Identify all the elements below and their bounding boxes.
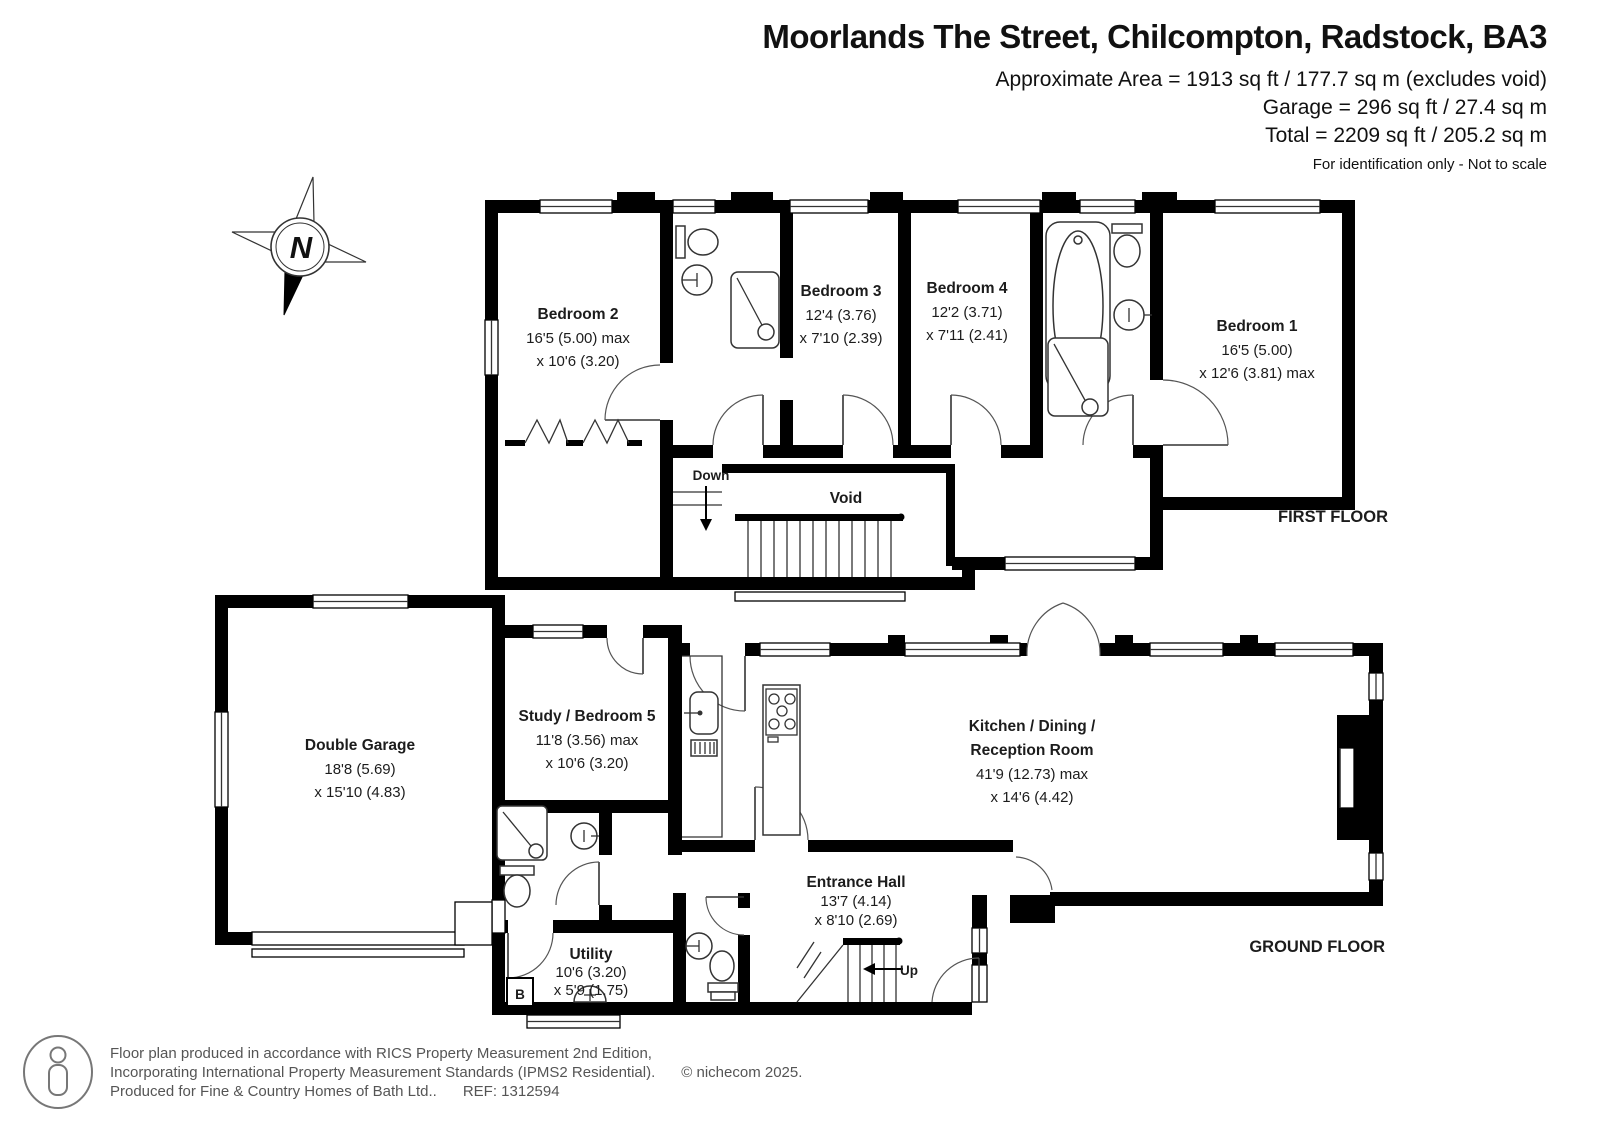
room-dim2-garage: x 15'10 (4.83) [314,784,405,801]
compass-north-label: N [290,230,313,265]
compass-rose-icon: N [232,177,366,315]
stairs-up-label: Up [900,963,918,978]
first-floor-labels: Bedroom 2 16'5 (5.00) max x 10'6 (3.20) … [526,280,1388,526]
footer-text: Floor plan produced in accordance with R… [110,1044,802,1101]
sink-icon [686,933,712,959]
room-dim2-bedroom3: x 7'10 (2.39) [800,330,883,347]
room-label-bedroom3: Bedroom 3 [801,283,882,300]
room-label-hall: Entrance Hall [806,874,905,891]
sink-icon [682,265,712,295]
room-dim1-garage: 18'8 (5.69) [324,761,395,778]
ground-floor-labels: Double Garage 18'8 (5.69) x 15'10 (4.83)… [305,708,1385,1002]
footer-line2-row: Incorporating International Property Mea… [110,1063,802,1082]
room-dim2-utility: x 5'9 (1.75) [554,982,629,999]
person-logo-icon [20,1033,96,1111]
shower-room-fixtures-first-floor [676,226,779,348]
toilet-icon [676,226,718,258]
copyright: © nichecom 2025. [681,1064,802,1081]
kitchen-sink-icon [684,692,718,756]
first-floor-label: FIRST FLOOR [1278,508,1388,526]
shower-icon [731,272,779,348]
room-dim1-bedroom3: 12'4 (3.76) [805,307,876,324]
first-floor-walls [485,192,1355,590]
room-dim1-hall: 13'7 (4.14) [820,893,891,910]
room-dim1-study: 11'8 (3.56) max [536,732,639,749]
room-dim1-kitchen: 41'9 (12.73) max [976,766,1089,783]
room-label-study: Study / Bedroom 5 [519,708,656,725]
room-label-garage: Double Garage [305,737,416,754]
boiler-label: B [515,987,525,1002]
room-label-kitchen-line1: Kitchen / Dining / [969,718,1096,735]
room-dim2-bedroom1: x 12'6 (3.81) max [1199,365,1315,382]
floor-plan-canvas: N [0,0,1599,1131]
room-label-utility: Utility [569,946,612,963]
toilet-icon [708,951,738,1000]
shower-icon [497,806,547,860]
room-dim1-bedroom2: 16'5 (5.00) max [526,330,630,347]
footer-line3-row: Produced for Fine & Country Homes of Bat… [110,1082,802,1101]
wardrobe-symbol [505,420,642,446]
room-dim2-kitchen: x 14'6 (4.42) [991,789,1074,806]
stairs-down-label: Down [693,468,730,483]
kitchen-island [763,685,800,835]
first-floor-plan: Bedroom 2 16'5 (5.00) max x 10'6 (3.20) … [485,192,1388,601]
shower-room-fixtures-ground-floor [497,806,599,907]
room-dim2-hall: x 8'10 (2.69) [815,912,898,929]
room-dim2-study: x 10'6 (3.20) [546,755,629,772]
room-label-bedroom4: Bedroom 4 [927,280,1008,297]
room-label-bedroom1: Bedroom 1 [1217,318,1298,335]
shower-icon [1048,338,1108,416]
staircase-ground-floor [797,938,903,1003]
sink-icon [571,823,599,849]
bathroom-fixtures-first-floor [1046,222,1152,416]
footer: Floor plan produced in accordance with R… [20,1033,802,1111]
ground-floor-plan: Double Garage 18'8 (5.69) x 15'10 (4.83)… [215,595,1385,1028]
room-dim1-utility: 10'6 (3.20) [555,964,626,981]
room-dim1-bedroom4: 12'2 (3.71) [931,304,1002,321]
room-dim1-bedroom1: 16'5 (5.00) [1221,342,1292,359]
toilet-icon [1112,224,1142,267]
sink-icon [1114,300,1152,330]
footer-line2: Incorporating International Property Mea… [110,1064,655,1081]
room-label-kitchen-line2: Reception Room [970,742,1093,759]
wc-fixtures [686,933,738,1000]
room-label-bedroom2: Bedroom 2 [538,306,619,323]
void-label: Void [830,490,862,507]
ground-floor-label: GROUND FLOOR [1249,938,1385,956]
room-dim2-bedroom2: x 10'6 (3.20) [537,353,620,370]
footer-line1: Floor plan produced in accordance with R… [110,1044,802,1063]
first-floor-doors [605,365,1228,445]
room-dim2-bedroom4: x 7'11 (2.41) [926,327,1008,344]
footer-line3: Produced for Fine & Country Homes of Bat… [110,1083,437,1100]
reference-number: REF: 1312594 [463,1083,560,1100]
